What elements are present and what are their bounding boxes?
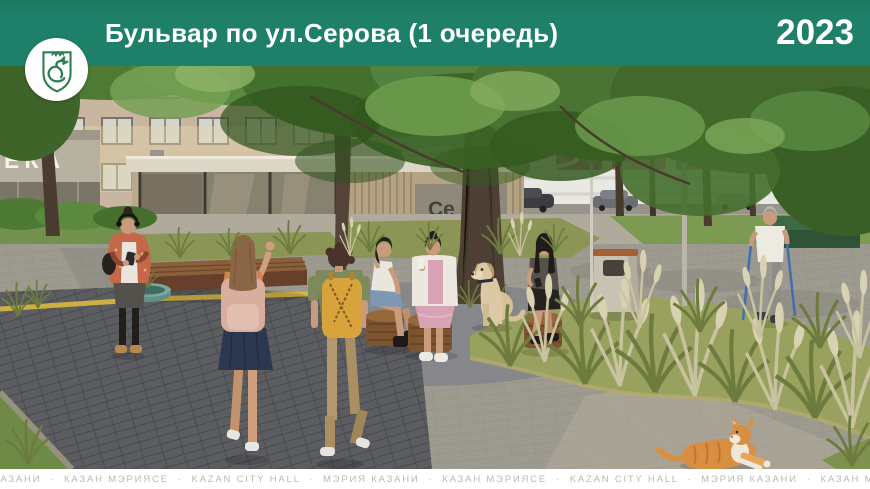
litter-bin: [589, 249, 643, 321]
header-bar: Бульвар по ул.Серова (1 очередь) 2023: [0, 0, 870, 66]
park-render: ЕКА: [0, 66, 870, 469]
year-label: 2023: [776, 13, 854, 53]
footer-text: МЭРИЯ КАЗАНИ · КАЗАН МЭРИЯСЕ · KAZAN CIT…: [0, 474, 870, 485]
footer-bar: МЭРИЯ КАЗАНИ · КАЗАН МЭРИЯСЕ · KAZAN CIT…: [0, 469, 870, 489]
page-title: Бульвар по ул.Серова (1 очередь): [105, 18, 558, 49]
waving-hand: [266, 242, 275, 251]
drink-cup: [418, 258, 424, 269]
dog-collar: [477, 280, 493, 282]
presentation-slide: Бульвар по ул.Серова (1 очередь) 2023: [0, 0, 870, 489]
kazan-coat-of-arms-icon: [36, 45, 78, 95]
kazan-logo-badge: [25, 38, 88, 101]
